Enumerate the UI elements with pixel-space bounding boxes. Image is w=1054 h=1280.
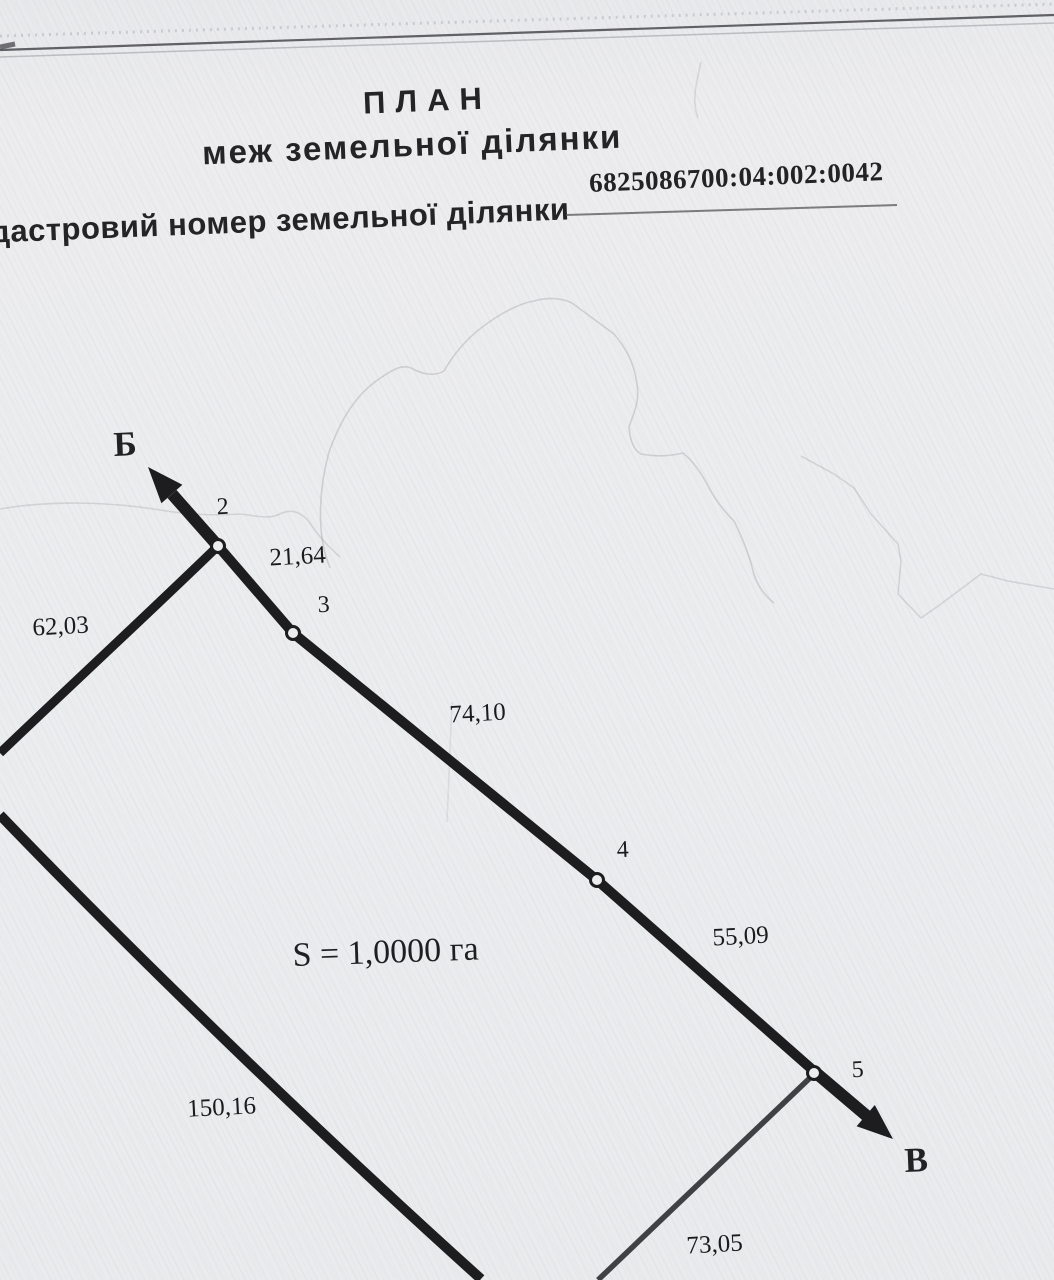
length-label-55-09: 55,09 [712, 922, 770, 952]
survey-point-5 [808, 1067, 821, 1080]
length-label-62-03: 62,03 [32, 612, 90, 642]
scanned-cadastral-plan-page: ПЛАН меж земельної ділянки 6825086700:04… [0, 0, 1054, 1280]
point-label-5: 5 [851, 1057, 864, 1083]
cadastral-underline [566, 205, 897, 215]
survey-point-3 [287, 627, 300, 640]
boundary-segment-1-bottom [0, 815, 481, 1279]
pencil-zigzag-right [801, 456, 1054, 618]
scan-edge-smudge [0, 44, 15, 47]
length-label-21-64: 21,64 [269, 542, 327, 572]
scan-edge-artifacts [0, 4, 1054, 57]
point-label-2: 2 [216, 494, 229, 520]
pencil-arc-top [695, 62, 701, 118]
scan-edge-line-dark [0, 15, 1054, 50]
scan-edge-line-light [0, 23, 1054, 57]
boundary-segment-1-2 [0, 546, 218, 753]
length-label-150-16: 150,16 [187, 1092, 257, 1123]
point-label-4: 4 [616, 837, 629, 863]
length-label-74-10: 74,10 [449, 699, 507, 729]
survey-point-2 [212, 540, 225, 553]
area-label: S = 1,0000 га [292, 931, 479, 974]
arrow-shaft-to-B-top [172, 494, 218, 546]
survey-point-4 [591, 874, 604, 887]
pencil-contour-blob [320, 299, 774, 603]
direction-marker-V-bottom: В [904, 1140, 929, 1180]
direction-marker-B-top: Б [113, 424, 138, 464]
length-label-73-05: 73,05 [686, 1230, 744, 1260]
parcel-boundary [0, 546, 815, 1280]
plan-drawing: 2 3 4 5 62,03 21,64 74,10 55,09 150,16 7… [0, 0, 1054, 1280]
pencil-traces [0, 62, 1054, 822]
boundary-segment-2-3-4-5 [218, 546, 815, 1072]
point-label-3: 3 [317, 592, 330, 618]
